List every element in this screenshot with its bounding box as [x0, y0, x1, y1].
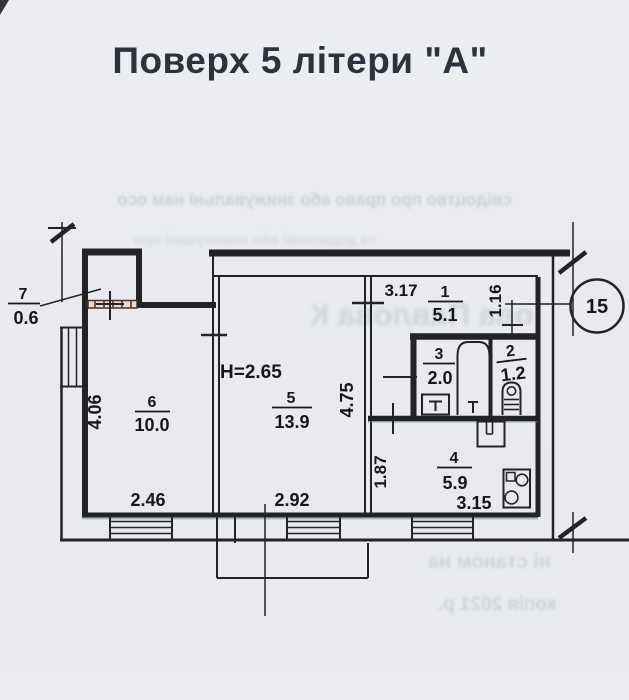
dim-kitchen-width: 3.15	[456, 493, 491, 513]
stove	[504, 470, 531, 508]
room3-area: 2.0	[427, 368, 452, 388]
room5-number: 5	[287, 390, 296, 407]
dim-hall-right: 1.16	[486, 284, 505, 317]
dim-room5-width: 2.92	[274, 490, 309, 510]
dim-corridor-width: 3.17	[384, 281, 417, 300]
bathtub	[458, 342, 490, 415]
axis-circle-label: 15	[586, 296, 608, 318]
scan-corner-mark	[0, 0, 9, 15]
page-title: Поверх 5 літери "А"	[0, 40, 600, 82]
room6-area: 10.0	[134, 415, 169, 435]
kitchen-sink	[478, 422, 505, 447]
washbasin	[422, 395, 449, 415]
room3-number: 3	[435, 346, 444, 363]
dim-room6-width: 2.46	[130, 490, 165, 510]
room2-area: 1.2	[500, 362, 527, 385]
room4-number: 4	[450, 450, 459, 467]
room7-number: 7	[19, 286, 28, 303]
dim-room6-side: 4.06	[85, 394, 105, 429]
room2-number: 2	[505, 343, 516, 361]
room5-area: 13.9	[274, 412, 309, 432]
floor-plan-drawing: 15 7 0.6 6 10.0 5 13.9 1 5.1 3 2.0	[0, 0, 629, 700]
axis-circle: 15	[571, 280, 624, 333]
lower-balcony-outline	[217, 517, 368, 578]
dim-kitchen-side: 1.87	[371, 455, 390, 488]
dim-room5-side: 4.75	[337, 382, 357, 417]
room4-area: 5.9	[442, 473, 467, 493]
room1-number: 1	[441, 284, 450, 301]
room1-area: 5.1	[432, 305, 457, 325]
room6-number: 6	[148, 394, 157, 411]
room7-area: 0.6	[13, 308, 38, 328]
toilet	[503, 383, 521, 416]
ceiling-height-note: H=2.65	[220, 362, 282, 383]
scanned-floor-plan-page: свідоцтво про право або знижувальні нам …	[0, 0, 629, 700]
